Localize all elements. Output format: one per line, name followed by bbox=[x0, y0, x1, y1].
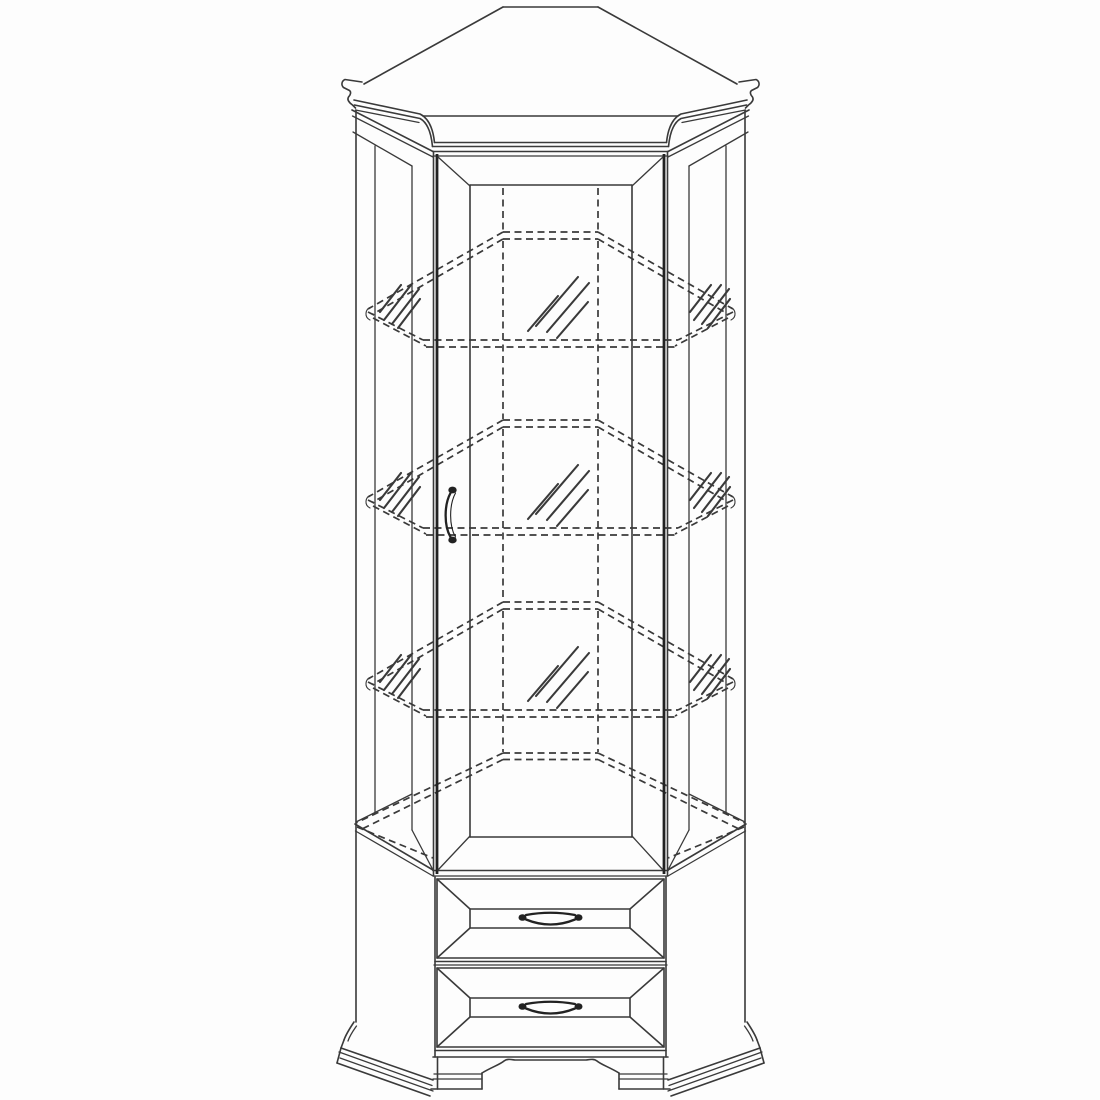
glass-shelf-1 bbox=[366, 232, 735, 347]
crown-right-tip bbox=[739, 80, 759, 109]
base-apron bbox=[482, 1059, 619, 1073]
bracket-foot-left bbox=[431, 1057, 482, 1089]
glass-door bbox=[433, 152, 668, 877]
drawer-2 bbox=[437, 968, 664, 1047]
drawer-section bbox=[434, 877, 667, 1057]
top-lid bbox=[364, 7, 737, 116]
drawers bbox=[437, 879, 664, 1047]
crown-left-tip bbox=[342, 80, 362, 109]
furniture-diagram bbox=[0, 0, 1100, 1100]
base-plinth-right bbox=[668, 1022, 764, 1096]
interior-floor bbox=[356, 753, 745, 858]
left-side-panel bbox=[352, 110, 433, 1022]
base-plinth-left bbox=[337, 1022, 433, 1096]
glass-shelf-2 bbox=[366, 420, 735, 535]
base-plinth bbox=[337, 1022, 764, 1096]
glass-shelf-3 bbox=[366, 602, 735, 717]
right-side-panel bbox=[668, 110, 749, 1022]
interior-shelves bbox=[366, 232, 735, 717]
drawer-1 bbox=[437, 879, 664, 958]
bracket-foot-right bbox=[619, 1057, 670, 1089]
corner-display-cabinet-drawing bbox=[0, 0, 1100, 1100]
